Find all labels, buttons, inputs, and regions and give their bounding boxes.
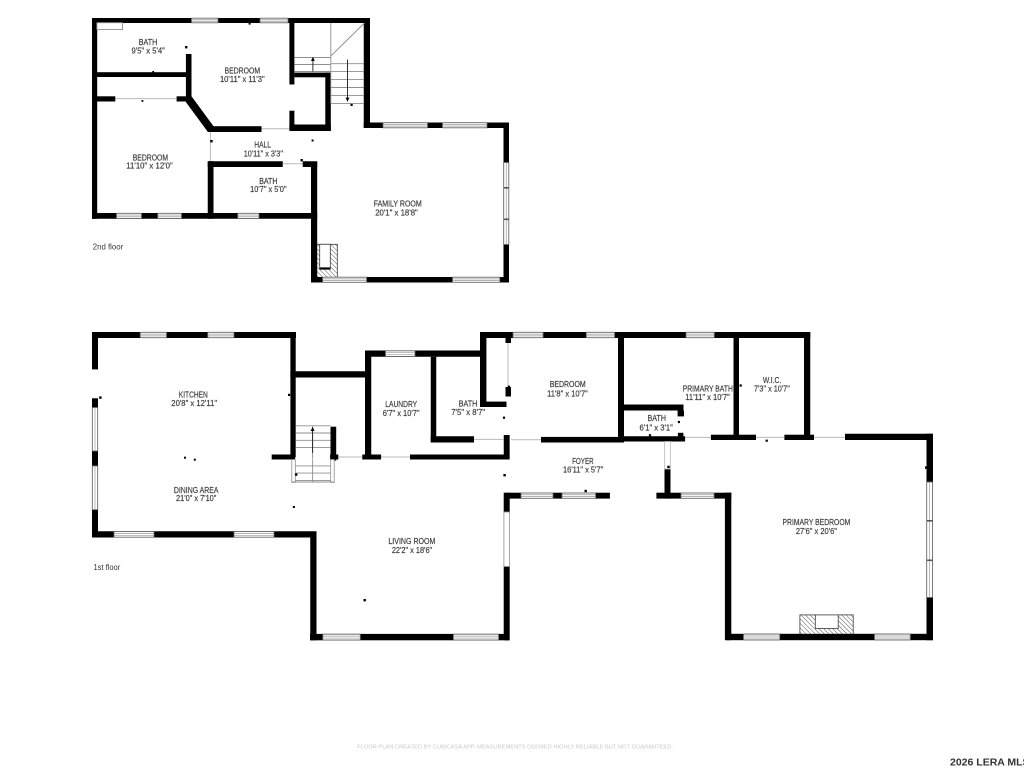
- svg-text:20'8" x 12'11": 20'8" x 12'11": [171, 398, 217, 408]
- svg-text:FLOOR PLAN CREATED BY CUBICASA: FLOOR PLAN CREATED BY CUBICASA APP. MEAS…: [357, 745, 673, 751]
- svg-text:6'7" x 10'7": 6'7" x 10'7": [383, 408, 420, 418]
- svg-text:16'11" x 5'7": 16'11" x 5'7": [563, 465, 603, 475]
- svg-text:20'1" x 18'8": 20'1" x 18'8": [375, 207, 418, 217]
- svg-text:2nd floor: 2nd floor: [93, 242, 124, 251]
- svg-text:10'7" x 5'0": 10'7" x 5'0": [250, 184, 286, 194]
- svg-text:11'11" x 10'7": 11'11" x 10'7": [685, 392, 730, 402]
- svg-text:1st floor: 1st floor: [94, 563, 121, 572]
- svg-text:10'11" x 11'3": 10'11" x 11'3": [220, 74, 265, 84]
- svg-text:22'2" x 18'6": 22'2" x 18'6": [392, 545, 432, 555]
- svg-text:7'5" x 8'7": 7'5" x 8'7": [451, 407, 485, 417]
- svg-text:7'3" x 10'7": 7'3" x 10'7": [754, 384, 790, 394]
- svg-text:21'0" x 7'10": 21'0" x 7'10": [176, 493, 216, 503]
- svg-text:2026 LERA MLS: 2026 LERA MLS: [950, 757, 1024, 768]
- svg-text:9'5" x 5'4": 9'5" x 5'4": [132, 45, 165, 55]
- svg-text:10'11" x 3'3": 10'11" x 3'3": [244, 149, 283, 159]
- svg-text:11'10" x 12'0": 11'10" x 12'0": [126, 161, 173, 171]
- svg-text:6'1" x 3'1": 6'1" x 3'1": [640, 422, 673, 432]
- svg-text:27'6" x 20'6": 27'6" x 20'6": [796, 526, 837, 536]
- svg-text:11'8" x 10'7": 11'8" x 10'7": [547, 388, 588, 398]
